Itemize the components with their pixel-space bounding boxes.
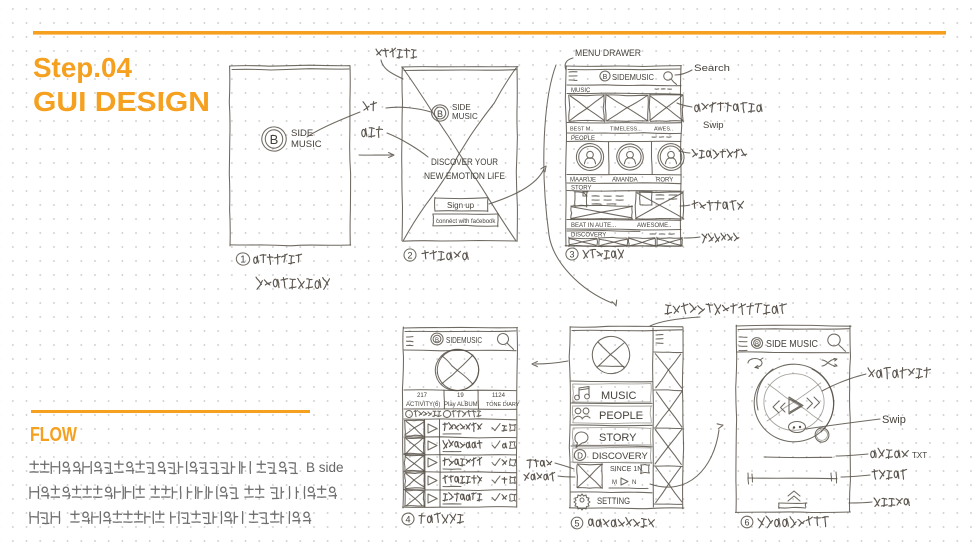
svg-text:1124: 1124 <box>492 393 506 399</box>
svg-text:BEST M..: BEST M.. <box>570 127 594 133</box>
svg-text:D: D <box>577 452 583 461</box>
svg-text:PEOPLE: PEOPLE <box>599 410 643 422</box>
svg-text:MUSIC: MUSIC <box>601 390 637 402</box>
svg-text:B: B <box>435 338 439 344</box>
svg-text:TONE DIARY: TONE DIARY <box>486 402 520 408</box>
svg-text:SIDE: SIDE <box>452 103 471 112</box>
svg-text:MUSIC: MUSIC <box>291 139 322 150</box>
svg-text:217: 217 <box>417 393 428 399</box>
svg-text:MAARIJE: MAARIJE <box>570 178 596 184</box>
svg-text:B: B <box>270 132 279 147</box>
svg-text:MUSIC: MUSIC <box>452 112 478 121</box>
svg-text:AWESOME..: AWESOME.. <box>637 223 672 229</box>
svg-text:5: 5 <box>574 518 579 528</box>
svg-text:N: N <box>632 480 636 486</box>
svg-text:NEW EMOTION LIFE: NEW EMOTION LIFE <box>424 171 505 181</box>
svg-text:6: 6 <box>744 517 749 527</box>
svg-text:Search: Search <box>694 63 730 74</box>
svg-text:SETTING: SETTING <box>597 496 630 506</box>
svg-text:1: 1 <box>240 255 245 266</box>
svg-text:M: M <box>612 480 617 486</box>
svg-text:4: 4 <box>405 514 410 524</box>
svg-text:AWES..: AWES.. <box>654 127 674 133</box>
svg-text:SIDEMUSIC: SIDEMUSIC <box>446 335 482 345</box>
svg-text:B: B <box>755 342 759 348</box>
svg-text:DISCOVERY: DISCOVERY <box>592 451 648 462</box>
svg-text:SIDE MUSIC: SIDE MUSIC <box>766 339 818 350</box>
svg-text:MENU DRAWER: MENU DRAWER <box>575 48 641 58</box>
svg-text:GUI DESIGN: GUI DESIGN <box>33 86 210 117</box>
svg-text:connect with facebook: connect with facebook <box>436 219 496 225</box>
svg-text:SINCE 1N: SINCE 1N <box>610 466 642 473</box>
svg-text:B side: B side <box>306 460 344 475</box>
svg-text:B: B <box>603 74 608 81</box>
svg-text:B: B <box>437 109 443 119</box>
svg-text:FLOW: FLOW <box>30 424 77 446</box>
svg-text:19: 19 <box>457 393 464 399</box>
svg-text:SIDE: SIDE <box>291 128 313 139</box>
svg-text:TXT: TXT <box>912 451 927 460</box>
svg-text:3: 3 <box>569 249 574 259</box>
svg-text:TIMELESS...: TIMELESS... <box>610 127 642 133</box>
svg-text:2: 2 <box>407 250 412 260</box>
svg-text:Swip: Swip <box>703 120 724 131</box>
svg-text:DISCOVER YOUR: DISCOVER YOUR <box>431 157 498 167</box>
svg-text:Sign up: Sign up <box>447 201 475 210</box>
svg-text:Step.04: Step.04 <box>33 52 132 83</box>
svg-text:STORY: STORY <box>599 432 637 444</box>
svg-text:BEAT IN AUTE...: BEAT IN AUTE... <box>571 223 616 229</box>
svg-text:Play ALBUM: Play ALBUM <box>444 402 478 408</box>
svg-text:SIDEMUSIC: SIDEMUSIC <box>612 72 654 82</box>
svg-text:ACTIVITY(6): ACTIVITY(6) <box>406 402 440 408</box>
svg-text:Swip: Swip <box>882 414 906 426</box>
